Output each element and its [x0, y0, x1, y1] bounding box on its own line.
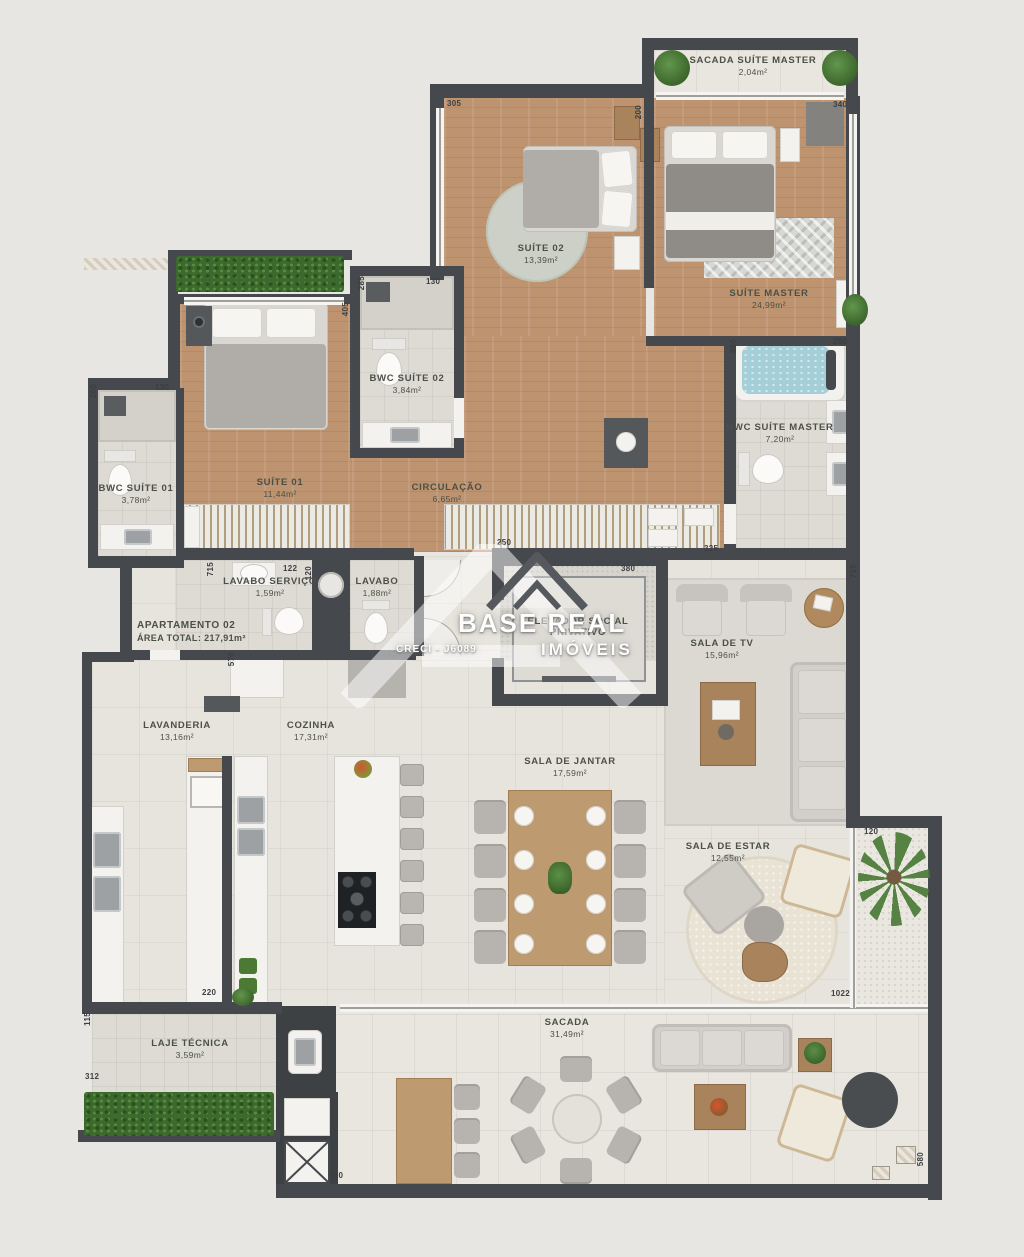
column-marker [896, 1146, 916, 1164]
column-marker [872, 1166, 890, 1180]
dimension: 340 [833, 100, 847, 109]
toilet-tank [372, 338, 406, 350]
dining-chair [614, 800, 646, 834]
outdoor-dining-table [396, 1078, 452, 1184]
sliding-door-glass [340, 1004, 928, 1012]
double-sink [237, 796, 265, 824]
room-label-bwc-master: BWC SUÍTE MASTER7,20m² [705, 422, 855, 444]
wall [656, 556, 668, 706]
wall [88, 556, 184, 568]
dimension: 580 [916, 1152, 925, 1166]
bed-suite-01-pillow [266, 308, 316, 338]
wall [350, 266, 464, 276]
palm-plant-icon [858, 832, 930, 926]
dining-chair [474, 800, 506, 834]
dimension: 260 [89, 384, 98, 398]
dining-chair [614, 930, 646, 964]
closet-box [648, 508, 678, 526]
outdoor-chair [454, 1152, 480, 1178]
round-table [552, 1094, 602, 1144]
bed-suite-02-pillow [600, 150, 634, 189]
room-label-sala-estar: SALA DE ESTAR12,55m² [653, 841, 803, 863]
bar-stool [400, 860, 424, 882]
outdoor-chair [560, 1056, 592, 1082]
fruit-bowl-icon [354, 760, 372, 778]
sink-icon [294, 1038, 316, 1066]
dimension: 360 [729, 339, 738, 353]
bed-suite-01-pillow [212, 308, 262, 338]
shower-fixture [366, 282, 390, 302]
dimension: 130 [155, 383, 169, 392]
wall [82, 652, 92, 1014]
sofa-cushion [660, 1030, 700, 1066]
watermark-brand-name: BASE REAL [458, 608, 626, 639]
door-gap [724, 504, 736, 544]
bench [204, 696, 240, 712]
bar-stool [400, 796, 424, 818]
bed-suite-master-pillow [671, 131, 717, 159]
wall [120, 556, 132, 660]
bed-suite-master-pillow [722, 131, 768, 159]
dining-chair [474, 844, 506, 878]
armchair-seat [682, 600, 722, 636]
pouf [744, 906, 784, 944]
bed-suite-master-blanket [666, 164, 774, 258]
bed-suite-master-throw [666, 212, 774, 230]
room-label-suite-02: SUÍTE 0213,39m² [466, 243, 616, 265]
wall [846, 346, 860, 560]
washer-icon [190, 776, 226, 808]
watermark-brand-sub: IMÓVEIS [541, 640, 633, 660]
side-table-wood [742, 942, 788, 982]
bed-suite-01-blanket [206, 344, 326, 428]
toilet-icon [752, 454, 784, 484]
room-label-circulacao: CIRCULAÇÃO6,65m² [372, 482, 522, 504]
outdoor-chair [560, 1158, 592, 1184]
room-label-suite-master: SUÍTE MASTER24,99m² [694, 288, 844, 310]
dining-chair [614, 888, 646, 922]
apartment-total-area: ÁREA TOTAL: 217,91m² [137, 633, 307, 643]
firepit-table [842, 1072, 898, 1128]
plant-icon [232, 988, 254, 1006]
dining-chair [474, 888, 506, 922]
dimension: 200 [833, 337, 847, 346]
coffee-table-book [712, 700, 740, 720]
dimension: 570 [227, 652, 236, 666]
closet-box [684, 508, 714, 526]
nightstand [780, 128, 800, 162]
service-elevator-x-icon [284, 1140, 330, 1184]
dimension: 325 [704, 544, 718, 553]
wall [642, 38, 858, 50]
bed-suite-02-pillow [600, 190, 633, 228]
room-label-bwc-suite-02: BWC SUÍTE 023,84m² [332, 373, 482, 395]
dimension: 305 [447, 99, 461, 108]
bathtub-water [742, 346, 830, 394]
dimension: 715 [206, 562, 215, 576]
window [184, 297, 344, 305]
wardrobe-suite-01 [182, 504, 350, 550]
apartment-title-block: APARTAMENTO 02 ÁREA TOTAL: 217,91m² [137, 620, 307, 643]
nightstand [614, 236, 640, 270]
plate-icon [586, 806, 606, 826]
cabinet [230, 654, 284, 698]
hedge-planter [84, 1092, 274, 1136]
plant-icon [804, 1042, 826, 1064]
room-label-lavanderia: LAVANDERIA13,16m² [102, 720, 252, 742]
bar-stool [400, 892, 424, 914]
dining-chair [614, 844, 646, 878]
plant-icon [842, 294, 868, 326]
wall [222, 756, 232, 1008]
window [849, 114, 857, 300]
laundry-sink [93, 832, 121, 868]
wall [168, 300, 180, 388]
sink-icon [124, 529, 152, 545]
wall [276, 1184, 940, 1198]
laundry-sink [93, 876, 121, 912]
neighbor-hatch [84, 258, 168, 270]
room-label-bwc-suite-01: BWC SUÍTE 013,78m² [61, 483, 211, 505]
plant-pot-icon [239, 958, 257, 974]
dimension: 200 [634, 105, 643, 119]
wall [846, 556, 860, 818]
room-label-sacada: SACADA31,49m² [492, 1017, 642, 1039]
bar-stool [400, 924, 424, 946]
wall [430, 84, 654, 98]
cooktop-icon [338, 872, 376, 928]
dimension: 405 [341, 302, 350, 316]
door-gap [454, 398, 464, 438]
plate-icon [514, 894, 534, 914]
closet-box [648, 529, 678, 547]
dining-chair [474, 930, 506, 964]
wall [88, 378, 98, 568]
dimension: 122 [283, 564, 297, 573]
bathtub-headrest [826, 350, 836, 390]
plate-icon [586, 850, 606, 870]
speaker-icon [193, 316, 205, 328]
shower-fixture [104, 396, 126, 416]
dimension: 715 [849, 564, 858, 578]
wall [350, 448, 464, 458]
bed-suite-02-blanket [523, 150, 599, 228]
plate-icon [514, 806, 534, 826]
room-label-sala-jantar: SALA DE JANTAR17,59m² [495, 756, 645, 778]
outdoor-chair [454, 1118, 480, 1144]
decor-vase-icon [718, 724, 734, 740]
plate-icon [514, 850, 534, 870]
watermark-logo-icon [481, 550, 593, 612]
dimension: 312 [85, 1072, 99, 1081]
dimension: 1022 [831, 989, 850, 998]
double-sink [237, 828, 265, 856]
centerpiece-plant-icon [548, 862, 572, 894]
room-label-laje-tecnica: LAJE TÉCNICA3,59m² [115, 1038, 265, 1060]
apartment-number: APARTAMENTO 02 [137, 620, 307, 631]
door-gap [150, 650, 180, 660]
wall [644, 96, 654, 288]
sofa-cushion [702, 1030, 742, 1066]
dimension: 115 [83, 1012, 92, 1026]
sliding-door-glass [656, 92, 844, 100]
service-elevator-lobby [284, 1098, 330, 1136]
plate-icon [586, 894, 606, 914]
floor-plan-canvas: 305 340 200 130 285 405 130 260 715 122 … [0, 0, 1024, 1257]
sofa-cushion [798, 766, 846, 810]
dimension: 285 [357, 276, 366, 290]
bar-stool [400, 764, 424, 786]
bar-stool [400, 828, 424, 850]
room-label-cozinha: COZINHA17,31m² [236, 720, 386, 742]
wall [928, 816, 942, 1200]
dimension: 130 [426, 277, 440, 286]
room-label-suite-01: SUÍTE 0111,44m² [205, 477, 355, 499]
toilet-tank [738, 452, 750, 486]
sofa-cushion [798, 670, 846, 714]
wardrobe-shelf [184, 506, 200, 548]
toilet-tank [104, 450, 136, 462]
room-label-sacada-master: SACADA SUÍTE MASTER2,04m² [678, 55, 828, 77]
room-label-sala-tv: SALA DE TV15,96m² [647, 638, 797, 660]
sink-icon [390, 427, 420, 443]
hedge-planter [176, 256, 344, 292]
outdoor-chair [454, 1084, 480, 1110]
plate-icon [514, 934, 534, 954]
wall [350, 266, 360, 458]
wall [176, 388, 184, 560]
dimension: 220 [202, 988, 216, 997]
watermark-creci: CRECI - J6089 [396, 644, 477, 655]
dimension: 980 [329, 1171, 343, 1180]
window [436, 108, 444, 266]
armchair-seat [746, 600, 786, 636]
glass-partition [850, 828, 856, 1008]
plate-icon [586, 934, 606, 954]
wall [92, 1002, 282, 1014]
sofa-cushion [744, 1030, 784, 1066]
dimension: 120 [864, 827, 878, 836]
console-decor [616, 432, 636, 452]
bowl-icon [710, 1098, 728, 1116]
sofa-cushion [798, 718, 846, 762]
